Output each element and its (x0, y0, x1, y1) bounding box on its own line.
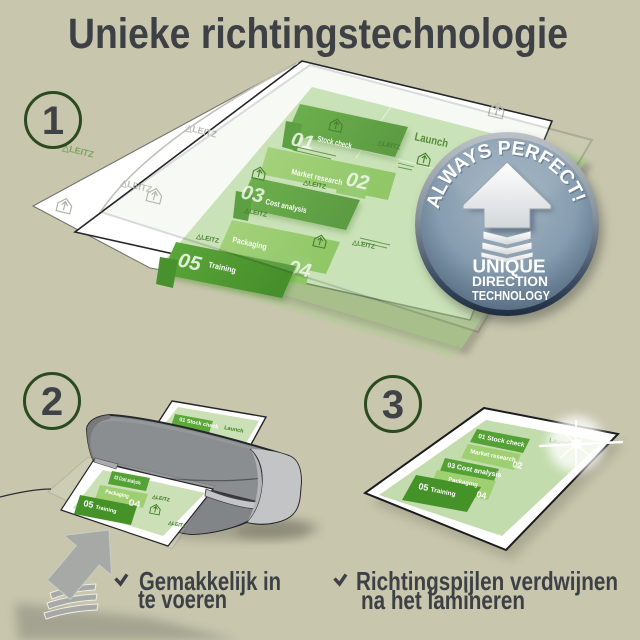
svg-text:na het lamineren: na het lamineren (361, 585, 525, 615)
svg-text:1: 1 (42, 99, 64, 143)
svg-text:Unieke richtingstechnologie: Unieke richtingstechnologie (68, 10, 568, 58)
svg-text:3: 3 (382, 383, 404, 427)
svg-text:DIRECTION: DIRECTION (472, 273, 548, 289)
svg-text:TECHNOLOGY: TECHNOLOGY (472, 288, 550, 303)
svg-text:te voeren: te voeren (138, 584, 227, 614)
svg-text:2: 2 (41, 380, 63, 424)
svg-text:04: 04 (476, 489, 488, 501)
svg-text:02: 02 (512, 459, 524, 471)
